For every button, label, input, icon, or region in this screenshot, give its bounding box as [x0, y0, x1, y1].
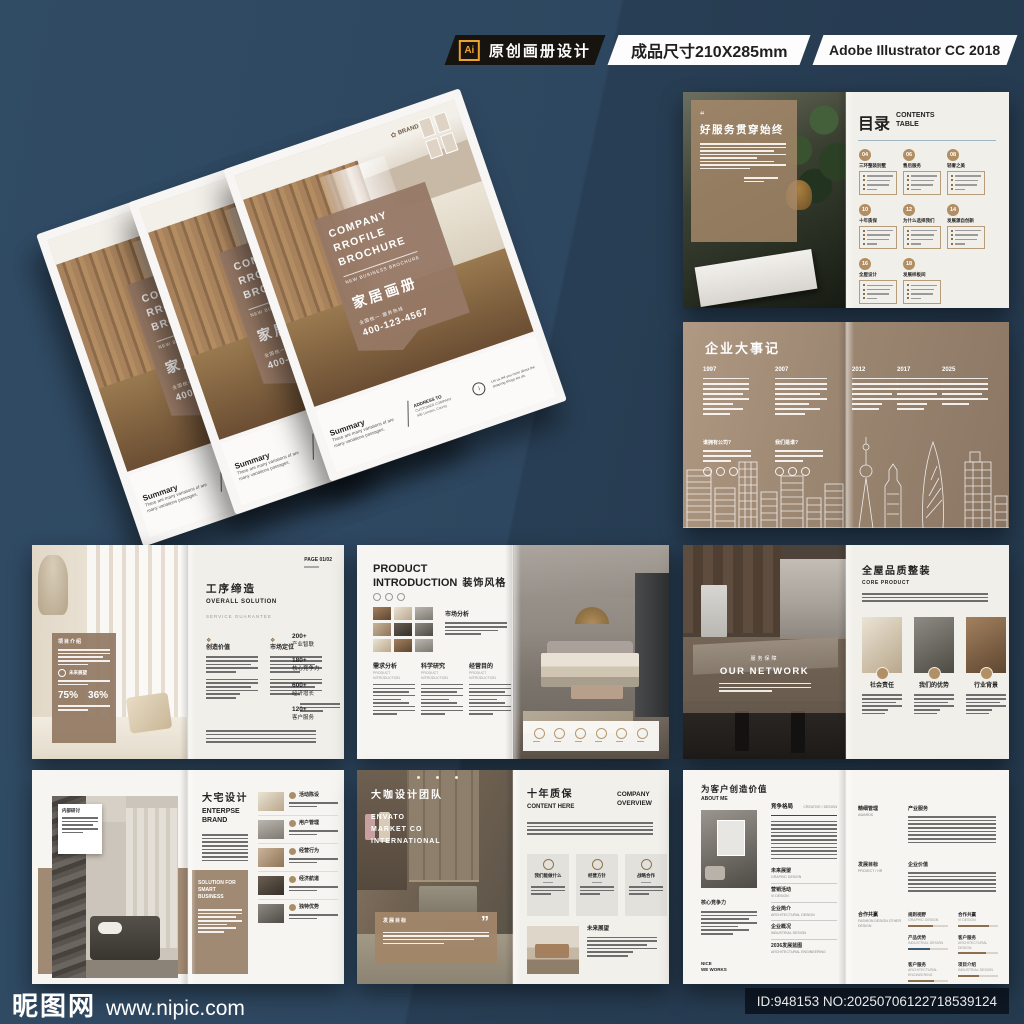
toc-num: 16: [859, 258, 871, 270]
spotlight: [455, 776, 458, 779]
adobe-illustrator-icon: Ai: [459, 40, 480, 61]
text-line: [907, 297, 924, 299]
footer-line2: WE WORKS: [701, 967, 727, 974]
feature-icon: [637, 728, 648, 739]
warranty-cards: 我们能做什么 经营方针 战略合作: [527, 854, 667, 916]
text-line: [421, 688, 463, 690]
text-line: [700, 157, 757, 159]
feature-item: [554, 728, 566, 745]
card-icon: [592, 859, 603, 870]
spread-contents: “ 好服务贯穿始终 目录 CONTENTS TABLE 04三环整装别墅 06售…: [683, 92, 1009, 308]
feature-item: [575, 728, 587, 745]
card-label: 我们的优势: [914, 682, 954, 690]
quote-title: 好服务贯穿始终: [700, 122, 788, 137]
toc-num: 10: [859, 204, 871, 216]
text-line: [58, 705, 110, 707]
future-block: 未来展望: [587, 926, 657, 959]
living-room-thumb: [527, 926, 579, 974]
text-line: [897, 403, 927, 405]
stat-lines: [58, 705, 110, 710]
text-line: [914, 705, 954, 707]
text-line: [771, 821, 837, 823]
team-sub2: MARKET CO: [371, 824, 441, 836]
year-label: 2007: [775, 367, 788, 373]
timeline-year: 2007: [775, 358, 827, 418]
stock-preview-image: Ai 原创画册设计 成品尺寸210X285mm Adobe Illustrato…: [0, 0, 1024, 1024]
team-subtitle: ENVATO MARKET CO INTERNATIONAL: [371, 812, 441, 848]
text-line: [908, 876, 996, 878]
row-lines: [289, 914, 338, 919]
thumbnail: [415, 607, 433, 620]
feature-item: [616, 728, 628, 745]
text-line: [863, 238, 889, 240]
solution-heading: 工序缔造 OVERALL SOLUTION SERVICE GUARANTEE: [206, 581, 277, 620]
text-line: [703, 383, 749, 385]
future-lines: [58, 680, 110, 685]
text-line: [469, 702, 505, 704]
contents-title-en2: TABLE: [896, 121, 935, 130]
text-line: [202, 856, 248, 858]
text-line: [908, 820, 996, 822]
thumbnail: [373, 623, 391, 636]
year-text-lines: [775, 383, 827, 415]
bedroom-photo-page: [513, 545, 669, 759]
band-en: OUR NETWORK: [720, 666, 809, 677]
enterprise-lines: [202, 834, 248, 864]
feature-item: [637, 728, 649, 745]
text-line: [206, 679, 258, 681]
skill-bar: [908, 948, 948, 950]
text-line: [289, 830, 338, 832]
timeline-year: 2025: [942, 358, 988, 408]
photo-window: [780, 559, 846, 639]
card-label: 我们能做什么: [531, 873, 565, 879]
row-label: 用户管理: [299, 820, 319, 827]
text-line: [897, 383, 943, 385]
row-lines: [289, 858, 338, 863]
about-sub: ABOUT ME: [701, 796, 768, 803]
year-text-lines: [897, 383, 943, 410]
text-line: [373, 688, 415, 690]
divider: [641, 882, 651, 883]
photo-bed: [541, 653, 639, 687]
text-line: [914, 702, 948, 704]
overview-line1: COMPANY: [617, 790, 652, 799]
colA-title: 合作共赢: [858, 912, 902, 919]
text-line: [771, 828, 837, 830]
text-line: [703, 408, 743, 410]
contents-photo-page: “ 好服务贯穿始终: [683, 92, 846, 308]
team-photo-page: 大咖设计团队 ENVATO MARKET CO INTERNATIONAL 发展…: [357, 770, 513, 984]
text-line: [701, 926, 738, 928]
col-sub: PRODUCT INTRODUCTION: [469, 671, 511, 680]
text-line: [383, 939, 474, 941]
list-item: 营销活动VI DESIGN: [771, 884, 837, 903]
enterprise-title-en2: BRAND: [202, 816, 248, 825]
colA-sub: FASHION DESIGN OTHER DESIGN: [858, 919, 902, 928]
text-line: [863, 230, 893, 232]
text-line: [862, 698, 902, 700]
item-sub: INDUSTRIAL DESIGN: [771, 931, 837, 936]
colB-section1: 产业服务: [908, 806, 996, 846]
text-line: [907, 179, 937, 181]
stat-value: 200+: [292, 633, 334, 642]
item-title: 2036发展蓝图: [771, 943, 837, 950]
future-label: 未来展望: [69, 670, 87, 676]
text-line: [907, 175, 937, 177]
circle-icon: [397, 593, 405, 601]
circle-icon: [373, 593, 381, 601]
text-line: [629, 893, 649, 895]
skill-bar: [958, 925, 998, 927]
quote-mark: ”: [481, 918, 489, 928]
text-line: [62, 832, 83, 834]
warranty-card: 经营方针: [576, 854, 618, 916]
photo-pillow: [126, 692, 173, 733]
goal-lines: [383, 932, 489, 945]
text-line: [701, 922, 757, 924]
toc-items: [859, 171, 897, 195]
text-line: [202, 860, 248, 862]
toc-title: 发展样板间: [903, 272, 941, 278]
info-icon: i: [471, 380, 488, 397]
row-icon: [289, 792, 296, 799]
card-photo: [862, 617, 902, 673]
text-line: [198, 916, 236, 918]
text-line: [373, 684, 415, 686]
skill-bar: [958, 975, 998, 977]
skill-item: 客户服务ARCHITECTURAL DESIGN: [958, 935, 998, 955]
enterprise-title-en1: ENTERPSE: [202, 807, 248, 816]
text-line: [908, 823, 996, 825]
text-line: [862, 713, 885, 715]
text-line: [908, 879, 996, 881]
text-line: [198, 909, 242, 911]
solution-col1: ❖ 创造价值: [206, 637, 258, 701]
text-line: [862, 705, 902, 707]
market-title: 市场分析: [445, 611, 507, 619]
timeline-year: 2017: [897, 358, 943, 413]
year-text-lines: [703, 383, 749, 415]
toc-section: 04三环整装别墅: [859, 149, 897, 195]
text-line: [966, 713, 989, 715]
text-line: [469, 688, 511, 690]
feature-label: [554, 741, 566, 743]
toc-section: 08轻奢之美: [947, 149, 985, 195]
colA-title: 精细管理: [858, 806, 902, 813]
text-line: [421, 710, 463, 712]
row-lines: [289, 886, 338, 891]
row-thumbnail: [258, 876, 284, 895]
stat-label: 核心竞争力: [292, 666, 334, 674]
core-heading: 全屋品质整装 CORE PRODUCT: [862, 565, 931, 587]
stat-label: 经济增长: [292, 691, 334, 699]
band-line2: SMART BUSINESS: [198, 887, 242, 901]
item-sub: ARCHITECTURAL ENGINEERING: [771, 950, 837, 955]
toc-num: 12: [903, 204, 915, 216]
skill-sub: INDUSTRIAL DESIGN: [908, 941, 948, 946]
text-line: [908, 883, 996, 885]
colB-title2: 企业价值: [908, 862, 996, 869]
item-sub: GRAPHIC DESIGN: [771, 875, 837, 880]
divider: [592, 882, 602, 883]
timeline-year: 2012: [852, 358, 898, 413]
stat-36: 36%: [88, 690, 108, 701]
row-icon: [289, 904, 296, 911]
toc-num: 08: [947, 149, 959, 161]
quote-body-lines: [700, 143, 786, 169]
warranty-card: 我们能做什么: [527, 854, 569, 916]
text-line: [373, 710, 415, 712]
text-line: [58, 709, 88, 711]
text-line: [421, 695, 463, 697]
page-number: PAGE 01/02: [304, 557, 332, 564]
divider: [543, 882, 553, 883]
future-title: 未来展望: [587, 926, 657, 934]
col-lines: [421, 684, 463, 715]
text-line: [897, 393, 937, 395]
enterprise-photo-page: 内部研讨: [32, 770, 188, 984]
text-line: [469, 710, 511, 712]
text-line: [198, 913, 242, 915]
card-lines: [629, 886, 663, 895]
text-line: [595, 741, 602, 743]
text-line: [701, 933, 733, 935]
thumbnail: [415, 623, 433, 636]
photo-stool: [735, 711, 749, 751]
photo-wardrobe: [635, 573, 669, 719]
text-line: [771, 858, 837, 860]
text-line: [862, 702, 896, 704]
row-icon: [289, 848, 296, 855]
text-line: [863, 234, 893, 236]
text-line: [469, 695, 511, 697]
card-photo: [914, 617, 954, 673]
stat-item: 600+经济增长: [292, 682, 334, 698]
warranty-intro-lines: [527, 822, 653, 837]
toc-items: [859, 226, 897, 250]
photo-pillow: [98, 922, 122, 934]
skill-item: 客户服务ARCHITECTURAL ENGINEERING: [908, 962, 948, 982]
card-icon: [543, 859, 554, 870]
col-lines: [469, 684, 511, 715]
overlay-lines: [58, 649, 110, 665]
text-line: [58, 660, 110, 662]
toc-items: [903, 171, 941, 195]
spread-solution: 项目介绍 未来展望 75% 36% PAGE 01/02 工序缔造: [32, 545, 344, 759]
product-col-3: 经营目的 PRODUCT INTRODUCTION: [469, 663, 511, 717]
skill-sub: VI DESIGN: [958, 918, 998, 923]
band-line1: SOLUTION FOR: [198, 880, 242, 887]
text-line: [206, 738, 316, 740]
text-line: [908, 816, 996, 818]
feature-row: 经营行为: [258, 844, 338, 872]
text-line: [587, 955, 628, 957]
text-line: [531, 893, 551, 895]
text-line: [206, 697, 236, 699]
text-line: [206, 671, 236, 673]
market-analysis: 市场分析: [445, 611, 507, 637]
skill-item: 产品优势INDUSTRIAL DESIGN: [908, 935, 948, 955]
col-lines: [373, 684, 415, 715]
banner-tag-label: 原创画册设计: [489, 40, 591, 61]
solution-title-cn: 工序缔造: [206, 581, 277, 596]
text-line: [421, 713, 445, 715]
text-line: [852, 388, 898, 390]
text-line: [373, 702, 409, 704]
colA-item1: 精细管理 AWARDS: [858, 806, 902, 818]
text-line: [852, 403, 882, 405]
about-list: 未来展望GRAPHIC DESIGN 营销活动VI DESIGN 企业简介ARC…: [771, 865, 837, 958]
text-line: [771, 832, 837, 834]
item-sub: ARCHITECTURAL DESIGN: [771, 913, 837, 918]
toc-items: [903, 226, 941, 250]
toc-title: 全屋设计: [859, 272, 897, 278]
divider: [408, 400, 409, 426]
toc-title: 售后服务: [903, 163, 941, 169]
core-title-cn: 全屋品质整装: [862, 565, 931, 578]
col-title: 需求分析: [373, 663, 415, 671]
footer-line1: NICE: [701, 961, 727, 968]
text-line: [202, 852, 248, 854]
text-line: [383, 932, 489, 934]
core-card: 社会责任: [862, 617, 902, 717]
overlay-title: 项目介绍: [58, 639, 110, 646]
text-line: [942, 398, 988, 400]
feature-label: [533, 741, 545, 743]
about-left-page: 为客户创造价值 ABOUT ME 核心竞争力 NICE WE WORKS 竞争格…: [683, 770, 846, 984]
text-line: [202, 838, 248, 840]
section-header: 竞争格局 CREATIVE / DESIGN: [771, 804, 837, 812]
about-right-page: 精细管理 AWARDS 发展目标 PROJECT / HR 合作共赢 FASHI…: [846, 770, 1009, 984]
text-line: [908, 827, 996, 829]
team-title: 大咖设计团队: [371, 786, 443, 801]
text-line: [771, 839, 837, 841]
text-line: [289, 914, 338, 916]
colA-item3: 合作共赢 FASHION DESIGN OTHER DESIGN: [858, 912, 902, 928]
text-line: [951, 175, 981, 177]
goal-quote-box: 发展目标 ”: [375, 912, 497, 964]
text-line: [469, 699, 497, 701]
text-line: [527, 829, 653, 831]
text-line: [771, 854, 837, 856]
text-line: [527, 833, 653, 835]
text-line: [966, 702, 1000, 704]
text-line: [908, 834, 996, 836]
text-line: [862, 694, 902, 696]
year-label: 2025: [942, 367, 955, 373]
callout-box: 内部研讨: [58, 804, 102, 854]
text-line: [907, 188, 924, 190]
card-label: 战略合作: [629, 873, 663, 879]
about-right-col: 竞争格局 CREATIVE / DESIGN 未来展望GRAPHIC DESIG…: [771, 804, 837, 958]
spotlight: [417, 776, 420, 779]
quote-mark: “: [700, 110, 788, 120]
text-line: [908, 887, 996, 889]
text-line: [744, 181, 764, 183]
feature-row: 活动陈设: [258, 788, 338, 816]
spread-network: 服务保障 OUR NETWORK 全屋品质整装 CORE PRODUCT 社会责…: [683, 545, 1009, 759]
row-label: 经济航道: [299, 876, 319, 883]
warranty-title-cn: 十年质保: [527, 788, 574, 801]
timeline-page: 企业大事记 1997 2007 2012 2017 2025 谁拥有公司? 我们…: [683, 322, 1009, 528]
text-line: [198, 920, 242, 922]
banner-software: Adobe Illustrator CC 2018: [813, 35, 1018, 65]
text-line: [58, 684, 88, 686]
text-line: [629, 886, 663, 888]
text-line: [863, 184, 889, 186]
section-title: 竞争格局: [771, 804, 793, 812]
timeline-title: 企业大事记: [705, 338, 780, 357]
text-line: [907, 284, 937, 286]
future-row: 未来展望: [58, 669, 110, 677]
goal-title: 发展目标: [383, 918, 407, 925]
contents-list-page: 目录 CONTENTS TABLE 04三环整装别墅 06售后服务 08轻奢之美…: [846, 92, 1009, 308]
text-line: [907, 184, 933, 186]
text-line: [531, 886, 565, 888]
card-photo: [966, 617, 1006, 673]
list-item: 企业概况INDUSTRIAL DESIGN: [771, 921, 837, 940]
text-line: [703, 398, 749, 400]
text-line: [914, 694, 954, 696]
text-line: [421, 702, 457, 704]
warranty-heading: 十年质保 CONTENT HERE: [527, 788, 574, 811]
text-line: [206, 682, 258, 684]
card-lines: [914, 694, 954, 714]
text-line: [206, 693, 240, 695]
feature-icon: [575, 728, 586, 739]
text-line: [575, 741, 582, 743]
feature-item: [595, 728, 607, 745]
solution-title-en: OVERALL SOLUTION: [206, 598, 277, 606]
text-line: [700, 164, 786, 166]
text-line: [719, 683, 811, 685]
text-line: [852, 398, 898, 400]
text-line: [966, 709, 992, 711]
text-line: [580, 893, 600, 895]
warranty-card: 战略合作: [625, 854, 667, 916]
toc-title: 十年质保: [859, 218, 897, 224]
skill-item: 合作共赢VI DESIGN: [958, 912, 998, 927]
row-icon: [289, 876, 296, 883]
col1-title: 创造价值: [206, 644, 258, 652]
site-name: 昵图网: [12, 986, 96, 1023]
text-line: [775, 408, 820, 410]
item-title: 企业简介: [771, 906, 837, 913]
product-col-2: 科学研究 PRODUCT INTRODUCTION: [421, 663, 463, 717]
toc-num: 18: [903, 258, 915, 270]
feature-icon: [554, 728, 565, 739]
text-line: [373, 695, 415, 697]
text-line: [701, 918, 749, 920]
text-line: [62, 821, 98, 823]
toc-items: [903, 280, 941, 304]
product-title-en2: INTRODUCTION: [373, 577, 457, 591]
section-right: CREATIVE / DESIGN: [803, 805, 837, 810]
col-sub: PRODUCT INTRODUCTION: [421, 671, 463, 680]
core-intro-lines: [862, 593, 988, 604]
stat-value: 120+: [292, 706, 334, 715]
toc-section: 12为什么选择我们: [903, 204, 941, 250]
core-card: 我们的优势: [914, 617, 954, 717]
text-line: [198, 927, 236, 929]
row-thumbnail: [258, 820, 284, 839]
text-line: [863, 243, 880, 245]
col-title: 经营目的: [469, 663, 511, 671]
text-line: [863, 179, 893, 181]
enterprise-title-cn: 大宅设计: [202, 792, 248, 805]
stats-row: 75% 36%: [58, 690, 110, 701]
